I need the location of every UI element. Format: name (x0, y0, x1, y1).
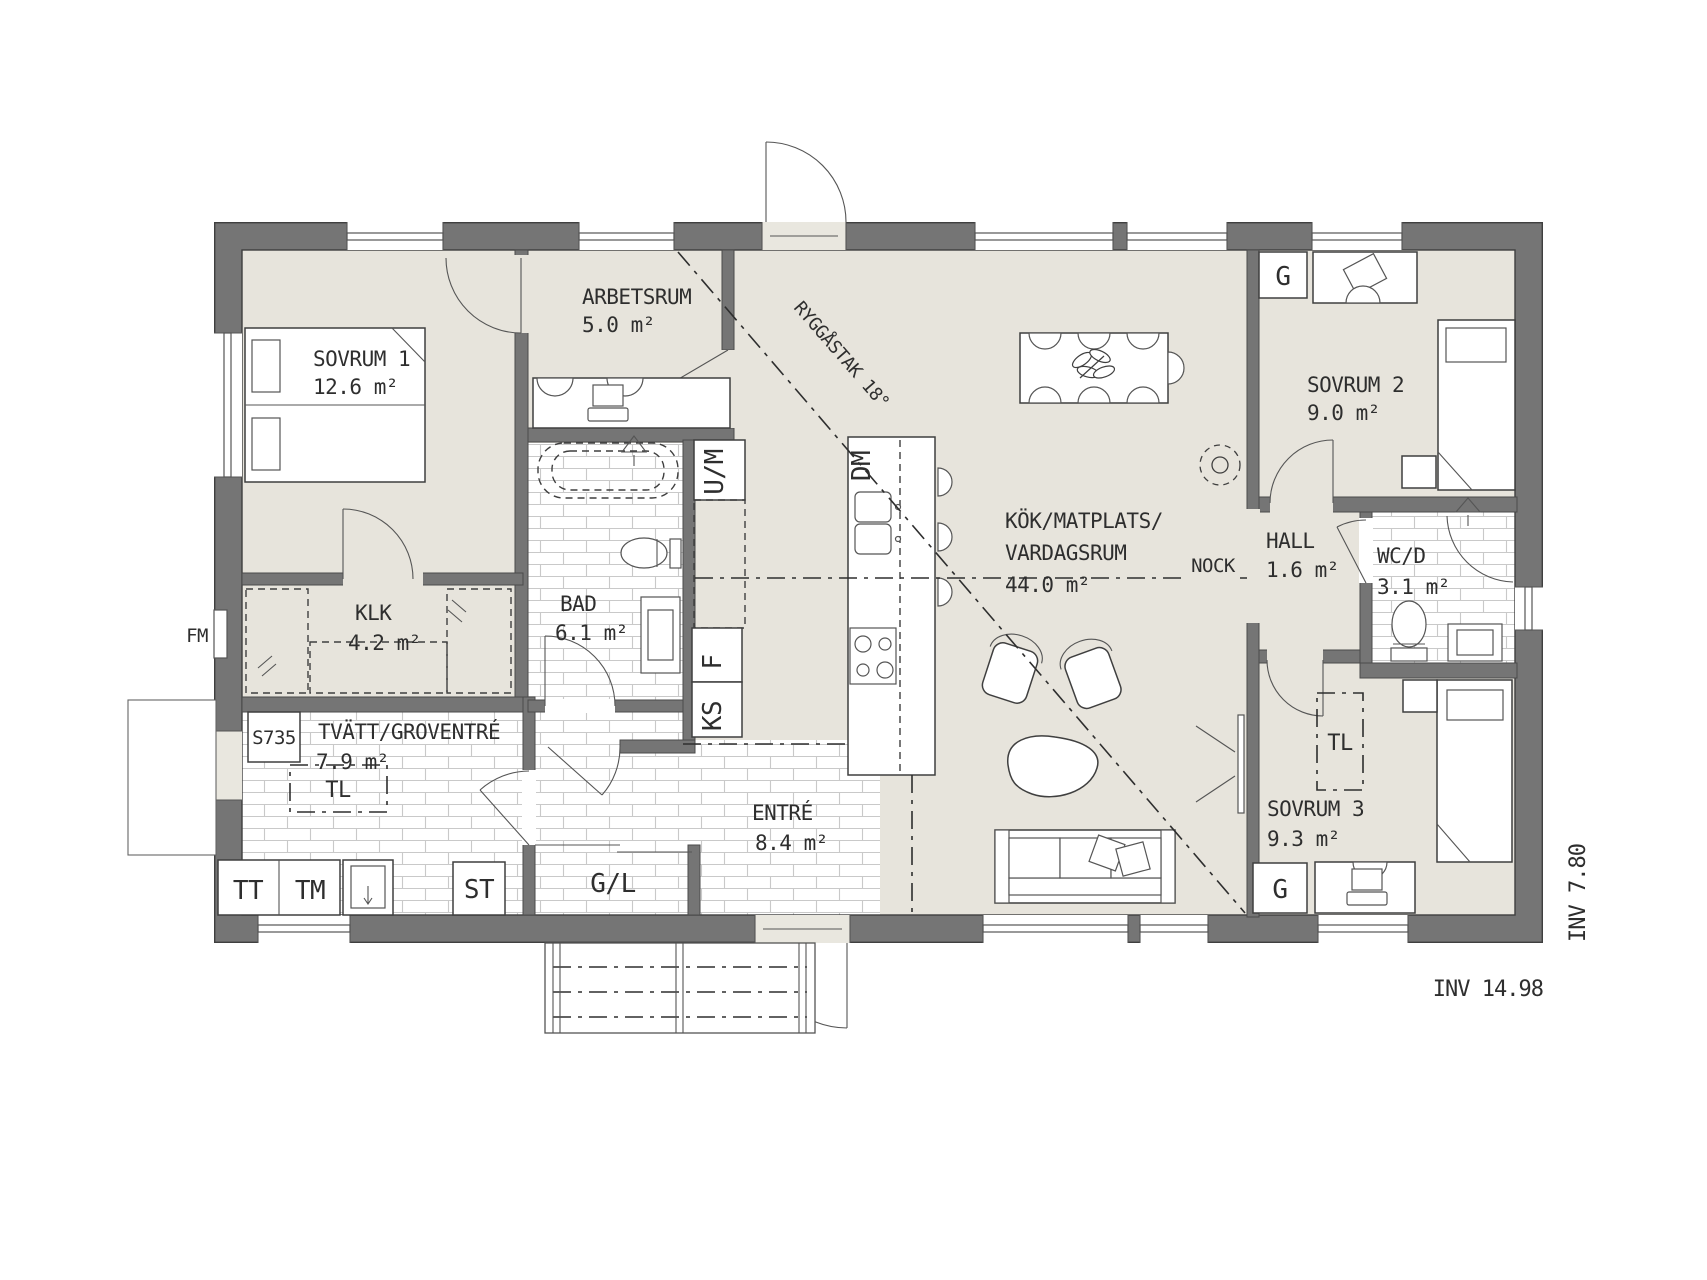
label-nock: NOCK (1191, 555, 1236, 577)
porch-left (128, 700, 216, 855)
floor-plan-page: SOVRUM 1 12.6 m² ARBETSRUM 5.0 m² KLK 4.… (0, 0, 1707, 1280)
label-tl-sovrum3: TL (1327, 731, 1353, 756)
label-ks: KS (698, 701, 728, 731)
deck (545, 943, 815, 1033)
label-hall-area: 1.6 m² (1266, 558, 1339, 582)
laptop-icon (588, 385, 628, 421)
laptop-icon (1347, 869, 1387, 905)
label-kok-name-2: VARDAGSRUM (1005, 541, 1126, 565)
label-inv-height: INV 7.80 (1566, 844, 1591, 942)
label-sovrum2-name: SOVRUM 2 (1307, 373, 1404, 397)
pillow (252, 340, 280, 392)
washbasin (1448, 624, 1502, 661)
nightstand (1402, 456, 1436, 488)
exterior-door-top (762, 142, 846, 250)
label-tl-tvatt: TL (325, 778, 351, 803)
label-tt: TT (233, 876, 264, 906)
toilet (1391, 601, 1427, 661)
label-fm: FM (186, 625, 208, 647)
label-g-sovrum3: G (1272, 875, 1287, 905)
label-sovrum3-area: 9.3 m² (1267, 827, 1340, 851)
wall-arbetsrum-right (722, 250, 734, 350)
label-gl: G/L (590, 869, 635, 899)
label-klk-area: 4.2 m² (348, 631, 421, 655)
label-entre-name: ENTRÉ (752, 800, 813, 825)
toilet (621, 538, 681, 568)
label-tvatt-area: 7.9 m² (316, 750, 389, 774)
wall-gl-right (688, 845, 700, 915)
label-sovrum3-name: SOVRUM 3 (1267, 797, 1364, 821)
label-entre-area: 8.4 m² (755, 831, 828, 855)
label-wcd-name: WC/D (1377, 544, 1426, 568)
label-bad-area: 6.1 m² (555, 621, 628, 645)
label-bad-name: BAD (560, 592, 596, 616)
label-kok-area: 44.0 m² (1005, 573, 1090, 597)
label-s735: S735 (252, 727, 296, 749)
furniture-arbetsrum (533, 378, 730, 428)
nightstand (1403, 680, 1437, 712)
pillow (1446, 328, 1506, 362)
label-hall-name: HALL (1266, 529, 1315, 553)
label-tm: TM (295, 876, 325, 906)
washbasin (641, 597, 680, 673)
label-arbetsrum-area: 5.0 m² (582, 313, 655, 337)
label-um: U/M (700, 449, 730, 494)
wall-klk-bottom (242, 697, 535, 712)
dining-chairs-top (1029, 333, 1159, 349)
label-kok-name-1: KÖK/MATPLATS/ (1005, 508, 1163, 533)
wall-wcd-bottom (1360, 663, 1517, 678)
entre-tile-floor (535, 740, 880, 915)
stove (850, 628, 896, 684)
label-klk-name: KLK (355, 601, 392, 625)
label-st: ST (464, 875, 495, 905)
label-sovrum1-name: SOVRUM 1 (313, 347, 410, 371)
dining-chairs-bottom (1029, 387, 1159, 403)
floor-plan-drawing: SOVRUM 1 12.6 m² ARBETSRUM 5.0 m² KLK 4.… (0, 0, 1707, 1280)
label-g-sovrum2: G (1275, 262, 1290, 292)
label-wcd-area: 3.1 m² (1377, 575, 1450, 599)
label-arbetsrum-name: ARBETSRUM (582, 285, 691, 309)
pillow (252, 418, 280, 470)
label-sovrum2-area: 9.0 m² (1307, 401, 1380, 425)
label-inv-width: INV 14.98 (1433, 977, 1543, 1002)
label-tvatt-name: TVÄTT/GROVENTRÉ (318, 719, 500, 744)
fm-panel (214, 610, 227, 658)
label-sovrum1-area: 12.6 m² (313, 375, 398, 399)
island-counter (848, 437, 935, 775)
laundry-sink (343, 860, 393, 915)
wall-entre-top (620, 740, 695, 753)
pillow (1447, 690, 1503, 720)
label-f: F (698, 654, 728, 669)
sofa (995, 830, 1175, 903)
label-dm: DM (847, 451, 877, 481)
